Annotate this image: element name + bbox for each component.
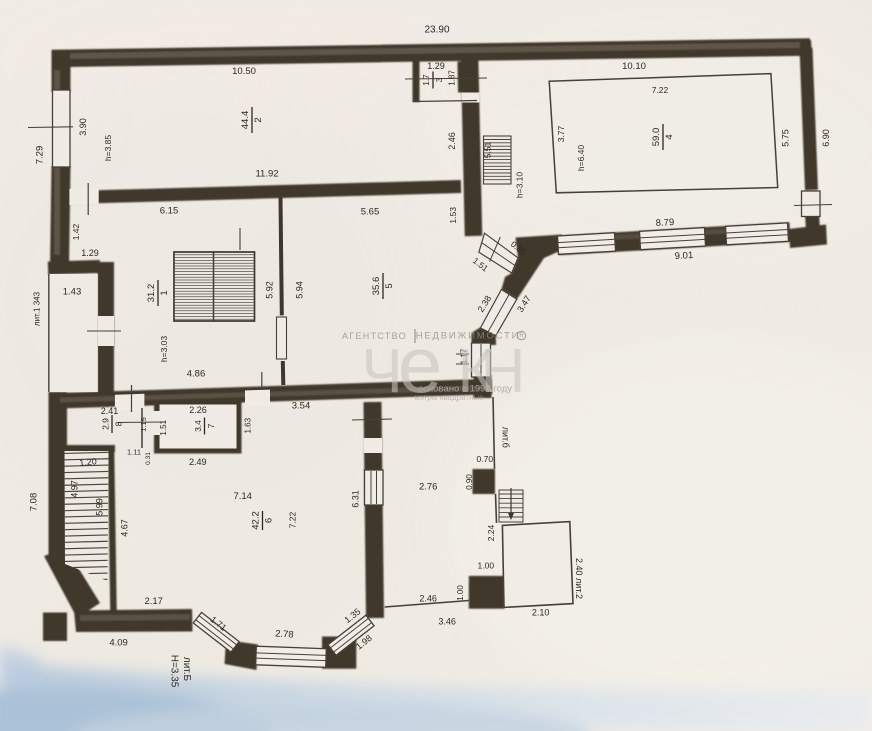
svg-text:35.6: 35.6	[371, 277, 382, 296]
svg-text:лит.Б: лит.Б	[181, 657, 192, 682]
svg-text:2.78: 2.78	[275, 628, 294, 640]
svg-text:h=6.40: h=6.40	[576, 145, 586, 172]
svg-text:2.10: 2.10	[532, 608, 550, 618]
svg-text:лит.1 343: лит.1 343	[33, 291, 42, 326]
svg-text:мэтры квадратные: мэтры квадратные	[414, 393, 484, 402]
svg-text:2.17: 2.17	[144, 596, 163, 607]
svg-text:Н=3.35: Н=3.35	[169, 655, 180, 688]
svg-text:59.0: 59.0	[651, 128, 662, 147]
svg-text:31.2: 31.2	[146, 284, 157, 303]
svg-text:10.50: 10.50	[232, 66, 256, 77]
svg-text:1.42: 1.42	[71, 223, 81, 240]
svg-text:7.14: 7.14	[233, 491, 252, 502]
svg-text:4: 4	[664, 134, 675, 139]
svg-text:7.22: 7.22	[288, 511, 298, 528]
svg-text:3.54: 3.54	[292, 401, 311, 412]
svg-text:4.97: 4.97	[70, 480, 80, 498]
svg-text:2.76: 2.76	[419, 482, 438, 493]
svg-text:3.46: 3.46	[438, 616, 456, 626]
svg-text:4.67: 4.67	[120, 519, 130, 537]
svg-text:7.08: 7.08	[29, 493, 40, 512]
svg-text:7: 7	[206, 423, 216, 428]
svg-text:1.29: 1.29	[81, 248, 99, 258]
svg-text:6: 6	[264, 518, 275, 523]
svg-text:3.77: 3.77	[556, 125, 566, 142]
svg-text:6.15: 6.15	[160, 206, 179, 217]
svg-text:2.40 лит.2: 2.40 лит.2	[574, 558, 584, 599]
svg-text:2.41: 2.41	[101, 406, 119, 416]
svg-text:5.92: 5.92	[265, 281, 275, 299]
svg-text:23.90: 23.90	[424, 25, 449, 36]
svg-text:h=3.85: h=3.85	[103, 135, 113, 162]
svg-text:3.90: 3.90	[78, 118, 88, 136]
svg-text:6.90: 6.90	[821, 129, 831, 147]
svg-text:8: 8	[114, 421, 124, 426]
svg-text:3.4: 3.4	[193, 420, 203, 432]
svg-text:1.51: 1.51	[159, 419, 168, 435]
svg-text:5.65: 5.65	[361, 207, 380, 218]
svg-text:6.31: 6.31	[351, 490, 361, 508]
svg-text:1.11: 1.11	[127, 448, 141, 457]
svg-text:2.46: 2.46	[447, 132, 457, 150]
svg-text:5.75: 5.75	[781, 129, 791, 147]
svg-text:1.19: 1.19	[139, 417, 148, 432]
svg-text:2.9: 2.9	[101, 418, 111, 430]
svg-text:1: 1	[159, 290, 170, 295]
svg-text:8.79: 8.79	[655, 217, 674, 229]
svg-text:1.00: 1.00	[478, 561, 495, 571]
svg-text:42.2: 42.2	[251, 511, 262, 530]
svg-text:5.94: 5.94	[295, 281, 305, 299]
svg-text:4.09: 4.09	[109, 638, 128, 649]
svg-text:5: 5	[384, 283, 395, 288]
svg-text:1.29: 1.29	[427, 61, 445, 71]
svg-text:2.46: 2.46	[419, 594, 437, 604]
svg-text:5.51: 5.51	[483, 141, 493, 158]
svg-text:2.49: 2.49	[189, 457, 207, 467]
svg-text:7.22: 7.22	[652, 85, 669, 95]
svg-text:1.00: 1.00	[456, 585, 465, 601]
svg-text:4.86: 4.86	[187, 369, 206, 380]
svg-text:3: 3	[435, 77, 444, 82]
svg-text:44.4: 44.4	[240, 111, 251, 130]
svg-text:лит.б: лит.б	[500, 427, 510, 448]
svg-text:10.10: 10.10	[622, 61, 646, 72]
svg-text:1.87: 1.87	[448, 70, 457, 86]
svg-text:2.24: 2.24	[486, 524, 496, 541]
svg-text:0.90: 0.90	[465, 474, 474, 490]
svg-text:Н: Н	[481, 337, 526, 406]
svg-text:1.63: 1.63	[243, 417, 252, 433]
svg-text:1.43: 1.43	[63, 287, 82, 298]
svg-text:1.20: 1.20	[79, 456, 97, 468]
svg-text:2.26: 2.26	[189, 405, 207, 415]
svg-text:11.92: 11.92	[255, 169, 278, 180]
svg-text:1.7: 1.7	[422, 74, 431, 86]
svg-text:Ч: Ч	[361, 337, 402, 406]
svg-text:0.31: 0.31	[145, 452, 152, 465]
svg-text:h=3.03: h=3.03	[159, 336, 169, 363]
svg-text:9.01: 9.01	[674, 250, 693, 262]
svg-text:7.29: 7.29	[35, 146, 46, 165]
svg-text:h=3.10: h=3.10	[515, 172, 525, 199]
svg-text:2: 2	[253, 117, 264, 122]
svg-text:5.99: 5.99	[95, 498, 105, 516]
svg-text:1.53: 1.53	[448, 207, 458, 224]
svg-text:0.70: 0.70	[477, 454, 494, 464]
